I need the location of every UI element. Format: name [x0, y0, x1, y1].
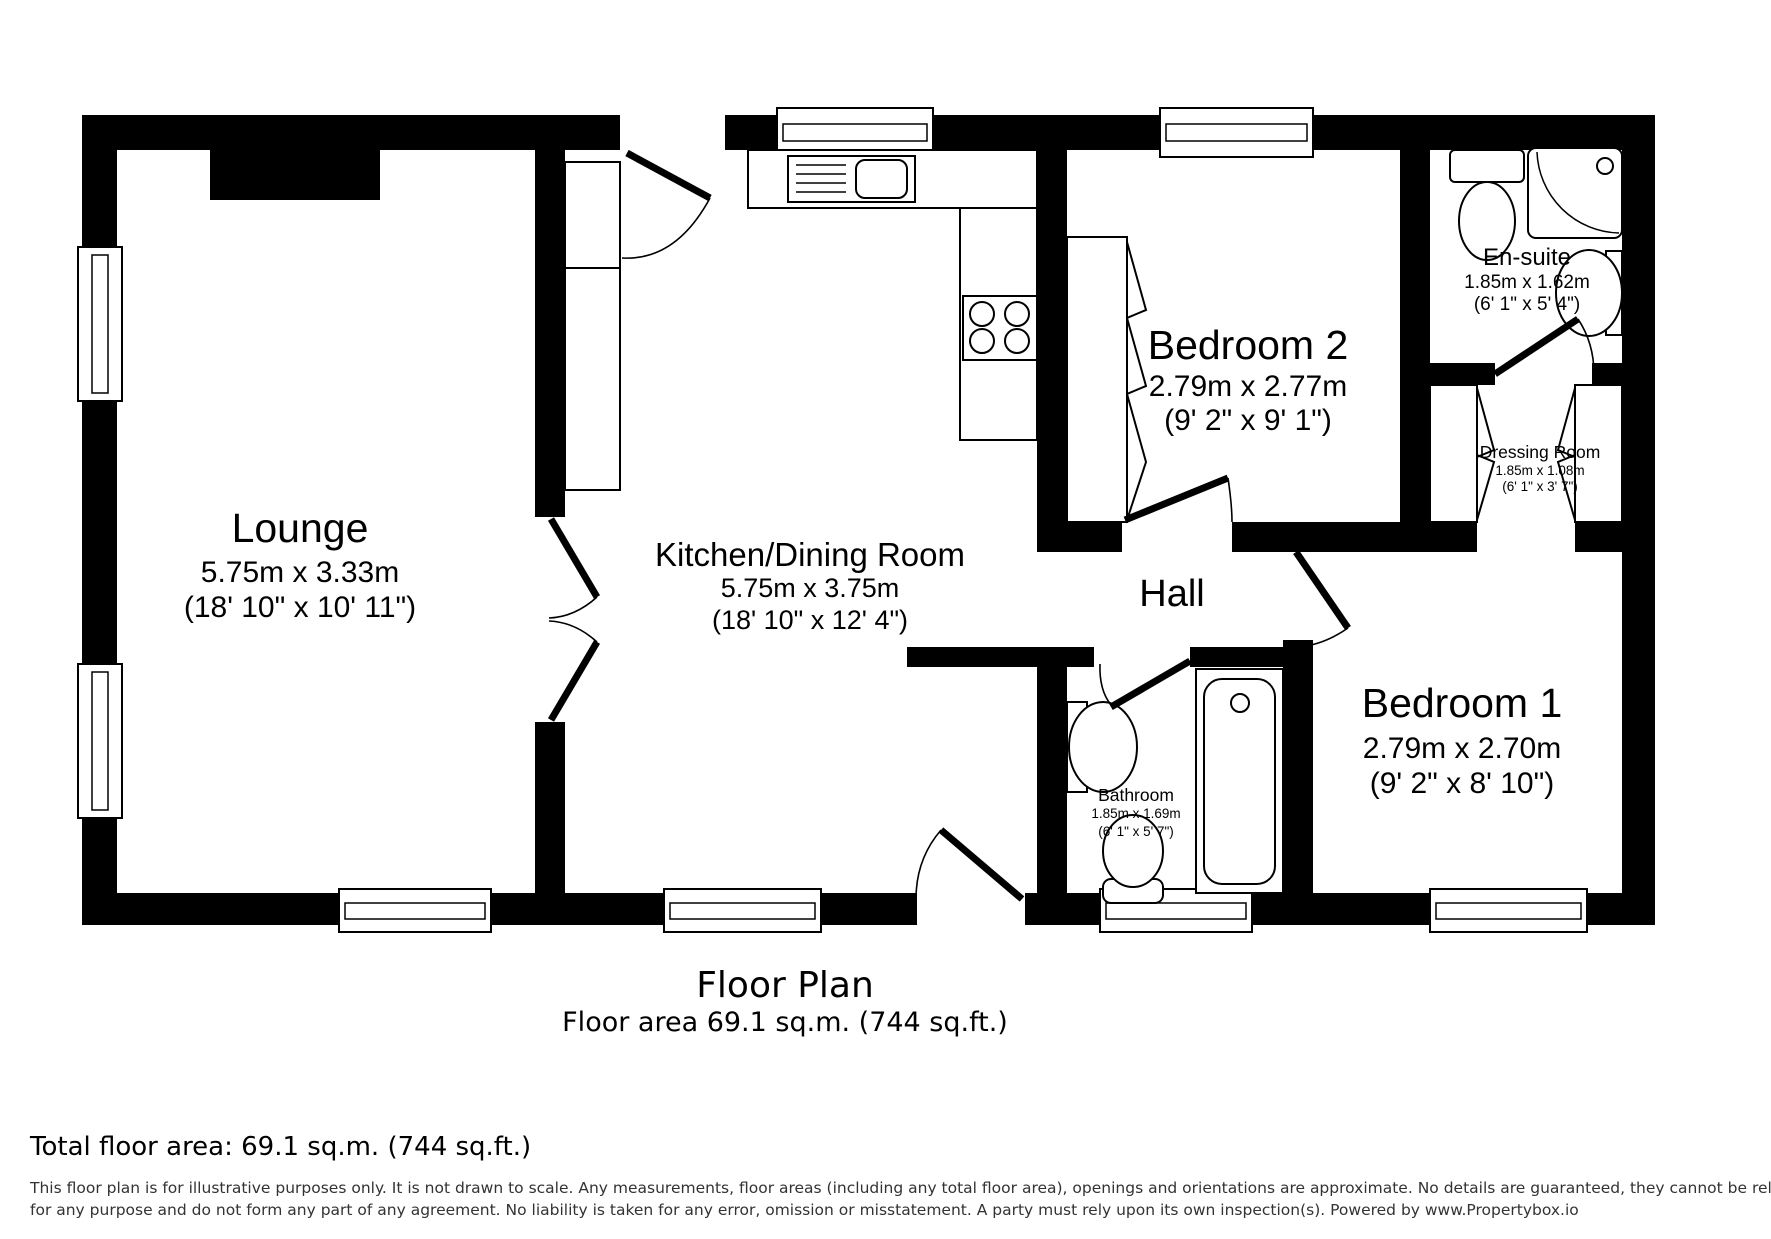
disclaimer-line-2: for any purpose and do not form any part… — [30, 1201, 1579, 1219]
bedroom1-dim-imperial: (9' 2" x 8' 10") — [1370, 767, 1555, 800]
chimney-breast — [210, 150, 380, 200]
bedroom2-door — [1125, 478, 1232, 522]
dressing-room-dim-imperial: (6' 1" x 3' 7") — [1502, 479, 1578, 494]
lounge-window-left-upper — [78, 247, 122, 401]
footer: Total floor area: 69.1 sq.m. (744 sq.ft.… — [29, 1132, 1771, 1219]
back-door — [622, 153, 710, 258]
front-door — [916, 830, 1022, 899]
bathroom-dim-imperial: (6' 1" x 5' 7") — [1098, 824, 1174, 839]
bathtub — [1196, 669, 1283, 893]
bedroom1-window-bottom — [1430, 889, 1587, 932]
bedroom2-label: Bedroom 2 — [1148, 322, 1349, 368]
bathroom-door — [1100, 661, 1190, 707]
lounge-dim-metric: 5.75m x 3.33m — [201, 556, 399, 589]
bedroom1-dim-metric: 2.79m x 2.70m — [1363, 732, 1561, 765]
plan-title: Floor Plan — [696, 965, 874, 1006]
lounge-label: Lounge — [232, 505, 369, 551]
dressing-room-label: Dressing Room — [1480, 442, 1601, 462]
ensuite-label: En-suite — [1483, 244, 1571, 271]
kitchen-hob — [963, 296, 1037, 360]
bathroom-dim-metric: 1.85m x 1.69m — [1091, 806, 1180, 821]
ensuite-dim-metric: 1.85m x 1.62m — [1464, 272, 1590, 293]
bathroom-basin — [1067, 702, 1137, 792]
disclaimer-line-1: This floor plan is for illustrative purp… — [29, 1179, 1771, 1197]
bedroom1-door — [1296, 552, 1348, 647]
lounge-window-bottom — [339, 889, 491, 932]
ensuite-dim-imperial: (6' 1" x 5' 4") — [1474, 294, 1580, 315]
kitchen-dim-imperial: (18' 10" x 12' 4") — [712, 605, 908, 635]
title-block: Floor Plan Floor area 69.1 sq.m. (744 sq… — [562, 965, 1008, 1038]
kitchen-sink — [788, 156, 915, 202]
bedroom2-dim-metric: 2.79m x 2.77m — [1149, 370, 1347, 403]
ensuite-shower — [1528, 148, 1622, 238]
kitchen-label: Kitchen/Dining Room — [655, 536, 965, 573]
bedroom2-window-top — [1160, 108, 1313, 157]
kitchen-window-bottom — [664, 889, 821, 932]
bathroom-label: Bathroom — [1098, 785, 1174, 805]
dressing-room-dim-metric: 1.85m x 1.08m — [1495, 463, 1584, 478]
lounge-dim-imperial: (18' 10" x 10' 11") — [184, 591, 416, 624]
bedroom2-wardrobe — [1067, 237, 1146, 522]
lounge-window-left-lower — [78, 664, 122, 818]
plan-area-caption: Floor area 69.1 sq.m. (744 sq.ft.) — [562, 1007, 1008, 1038]
double-doors-lounge-kitchen — [549, 519, 597, 720]
floor-plan-page: Lounge 5.75m x 3.33m (18' 10" x 10' 11")… — [0, 0, 1771, 1239]
kitchen-units — [565, 162, 620, 490]
bedroom2-dim-imperial: (9' 2" x 9' 1") — [1164, 404, 1332, 437]
bedroom1-label: Bedroom 1 — [1362, 680, 1563, 726]
kitchen-dim-metric: 5.75m x 3.75m — [721, 573, 900, 603]
hall-label: Hall — [1139, 573, 1204, 615]
total-floor-area: Total floor area: 69.1 sq.m. (744 sq.ft.… — [29, 1132, 531, 1162]
